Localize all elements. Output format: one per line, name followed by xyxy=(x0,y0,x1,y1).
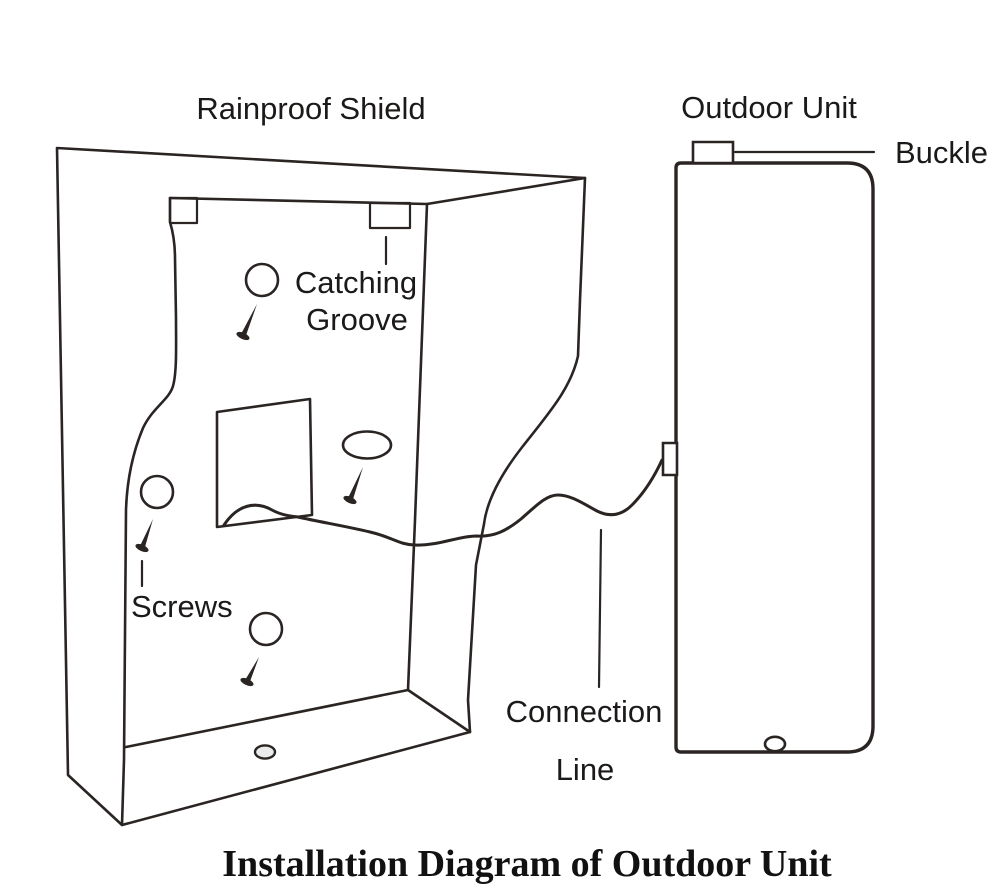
catching-groove-left xyxy=(170,198,197,223)
screw-hole-bottom xyxy=(250,613,282,645)
diagram-canvas: Rainproof Shield Outdoor Unit Buckle Cat… xyxy=(0,0,1000,895)
connector-tab xyxy=(663,443,677,475)
screw-hole-right xyxy=(343,432,391,459)
shield-top-back-edge xyxy=(427,178,585,204)
connection-line-label-line2: Line xyxy=(556,752,615,787)
shield-panel-bottom-edge xyxy=(126,690,408,747)
connection-line-leader xyxy=(599,530,601,687)
catching-groove-label-line1: Catching xyxy=(295,265,417,300)
screw-hole-top xyxy=(246,264,278,296)
catching-groove-label-line2: Groove xyxy=(306,302,408,337)
screw-top xyxy=(235,304,257,342)
screw-left xyxy=(134,519,153,554)
connection-line-cable xyxy=(224,460,662,545)
installation-diagram: Rainproof Shield Outdoor Unit Buckle Cat… xyxy=(0,0,1000,895)
buckle-tab xyxy=(693,142,733,163)
shield-floor-hole xyxy=(255,745,275,758)
unit-bottom-hole xyxy=(765,737,785,751)
outdoor-unit-body xyxy=(676,163,873,752)
catching-groove-right xyxy=(370,203,410,228)
screw-bottom xyxy=(239,657,259,688)
diagram-title: Installation Diagram of Outdoor Unit xyxy=(222,843,832,885)
shield-floor-right-edge xyxy=(408,690,470,732)
screw-right xyxy=(342,467,363,506)
outdoor-unit-label: Outdoor Unit xyxy=(681,90,857,125)
connection-line-label-line1: Connection xyxy=(506,694,663,729)
screws-label: Screws xyxy=(131,589,233,624)
rainproof-shield-label: Rainproof Shield xyxy=(196,91,425,126)
screw-hole-left xyxy=(141,476,173,508)
shield-panel-left-edge xyxy=(122,198,176,825)
buckle-label: Buckle xyxy=(895,135,988,170)
